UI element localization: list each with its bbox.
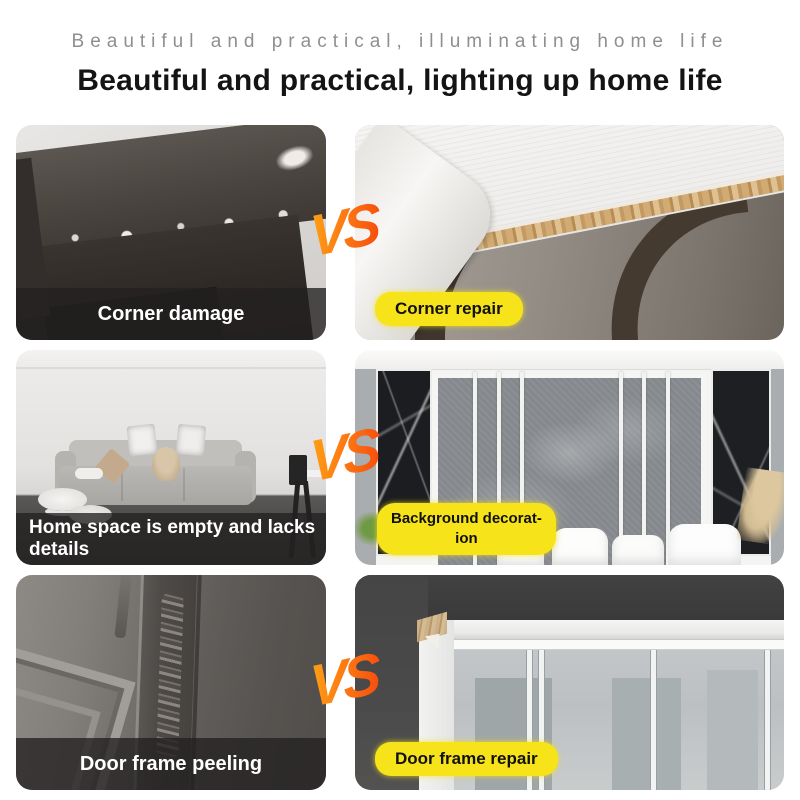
door-hinge-strip — [115, 575, 133, 638]
after-photo-background-decoration: Background decorat- ion — [355, 350, 784, 565]
promo-banner: Beautiful and practical, illuminating ho… — [0, 0, 800, 800]
banner-title: Beautiful and practical, lighting up hom… — [0, 64, 800, 98]
plush-dog — [152, 447, 180, 481]
before-caption: Home space is empty and lacks details — [16, 513, 326, 565]
door-top-track — [454, 640, 784, 651]
comparison-row-door-frame: Door frame peeling VS Door frame repair — [0, 575, 800, 790]
door-divider — [651, 642, 656, 790]
ceiling — [355, 350, 784, 370]
before-caption: Corner damage — [16, 288, 326, 340]
interior-reflection — [612, 678, 681, 790]
ceiling-line — [16, 367, 326, 369]
white-sofa-cushion — [552, 528, 608, 565]
white-sofa-cushion — [612, 535, 663, 565]
door-divider — [765, 642, 770, 790]
interior-reflection — [707, 670, 758, 790]
after-label-pill: Door frame repair — [375, 742, 558, 776]
trim-peel-flap — [425, 634, 442, 651]
after-label-pill: Background decorat- ion — [377, 503, 556, 556]
comparison-row-background: Home space is empty and lacks details VS… — [0, 350, 800, 565]
after-photo-corner-repair: Corner repair — [355, 125, 784, 340]
white-sofa-armrest — [668, 524, 741, 565]
white-pillow — [126, 424, 157, 457]
white-door-frame — [419, 620, 784, 639]
after-label-pill: Corner repair — [375, 292, 523, 326]
sofa-seam — [183, 468, 185, 500]
after-photo-door-repair: Door frame repair — [355, 575, 784, 790]
banner-subtitle: Beautiful and practical, illuminating ho… — [0, 31, 800, 53]
comparison-row-corner: Corner damage VS Corner repair — [0, 125, 800, 340]
sofa-towel — [75, 468, 103, 479]
white-pillow — [176, 424, 206, 456]
before-caption: Door frame peeling — [16, 738, 326, 790]
